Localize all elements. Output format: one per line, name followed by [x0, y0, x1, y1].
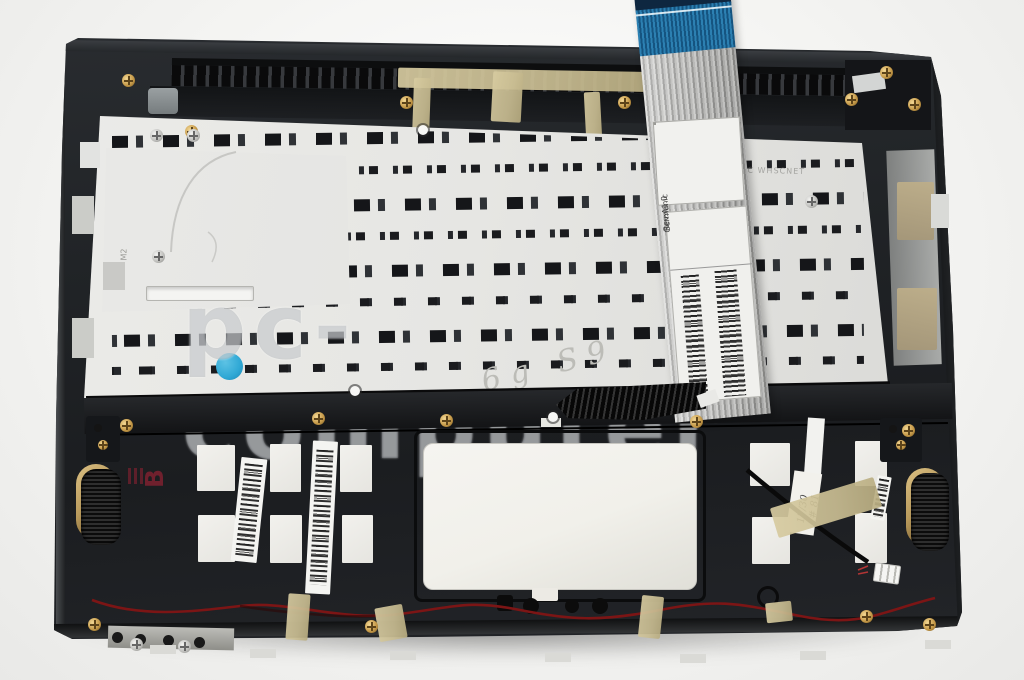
bottom-tab [250, 649, 276, 658]
gold-screw [440, 414, 453, 427]
gold-screw [902, 424, 915, 437]
silver-screw [805, 195, 818, 208]
silver-screw [152, 250, 165, 263]
cable-rev-label: Rev:A1.0 Germanic [665, 206, 762, 404]
gold-screw [860, 610, 873, 623]
gold-screw [88, 618, 101, 631]
gold-screw [400, 96, 413, 109]
gold-screw [120, 419, 133, 432]
bracket-knob [194, 637, 205, 648]
silver-screw [150, 129, 163, 142]
laptop-palmrest-photo: M2 LNURC WHSCNET 6g S9 pc-computer 17/30… [0, 0, 1024, 680]
cable-barcode [714, 270, 746, 397]
gold-screw [122, 74, 135, 87]
gold-screw [312, 412, 325, 425]
kapton-tape [285, 593, 310, 640]
speaker-connector [873, 562, 901, 584]
silver-screw [130, 638, 143, 651]
cable-barcode [681, 274, 708, 395]
gold-screw [618, 96, 631, 109]
gold-screw [908, 98, 921, 111]
grid-cell-text: R [654, 123, 656, 125]
gold-screw [845, 93, 858, 106]
bottom-tab [545, 653, 571, 662]
bottom-tab [390, 651, 416, 660]
cable-grid-label: FA!MAYKTVFR [653, 117, 745, 206]
gold-screw [923, 618, 936, 631]
bottom-tab [680, 654, 706, 663]
gold-screw [690, 415, 703, 428]
screw-hole [548, 412, 558, 422]
grid-cell: R [654, 123, 656, 125]
screw-hole [350, 386, 360, 396]
gold-screw [365, 620, 378, 633]
red-wire [0, 0, 1024, 680]
silver-screw [178, 640, 191, 653]
bottom-tab [150, 645, 176, 654]
gold-screw [880, 66, 893, 79]
kapton-tape [638, 595, 664, 639]
kapton-tape [374, 604, 407, 642]
screw-hole [418, 125, 428, 135]
bottom-tab [925, 640, 951, 649]
bracket-knob [112, 632, 123, 643]
bottom-tab [800, 651, 826, 660]
silver-screw [187, 129, 200, 142]
kapton-tape [765, 601, 793, 624]
